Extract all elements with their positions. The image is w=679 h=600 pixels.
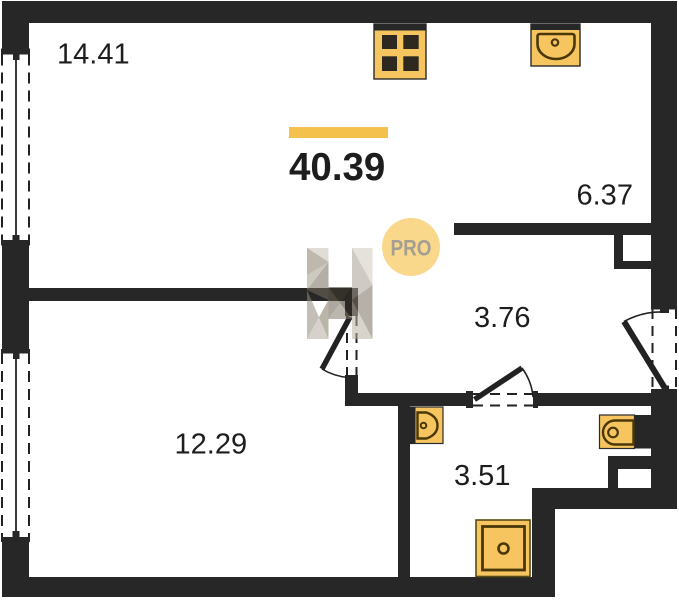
svg-text:12.29: 12.29 bbox=[175, 429, 248, 461]
svg-text:PRO: PRO bbox=[391, 236, 432, 261]
svg-text:14.41: 14.41 bbox=[57, 39, 130, 71]
svg-text:3.76: 3.76 bbox=[474, 302, 530, 334]
svg-text:6.37: 6.37 bbox=[577, 180, 633, 212]
svg-text:3.51: 3.51 bbox=[454, 460, 510, 492]
svg-text:40.39: 40.39 bbox=[289, 146, 385, 189]
